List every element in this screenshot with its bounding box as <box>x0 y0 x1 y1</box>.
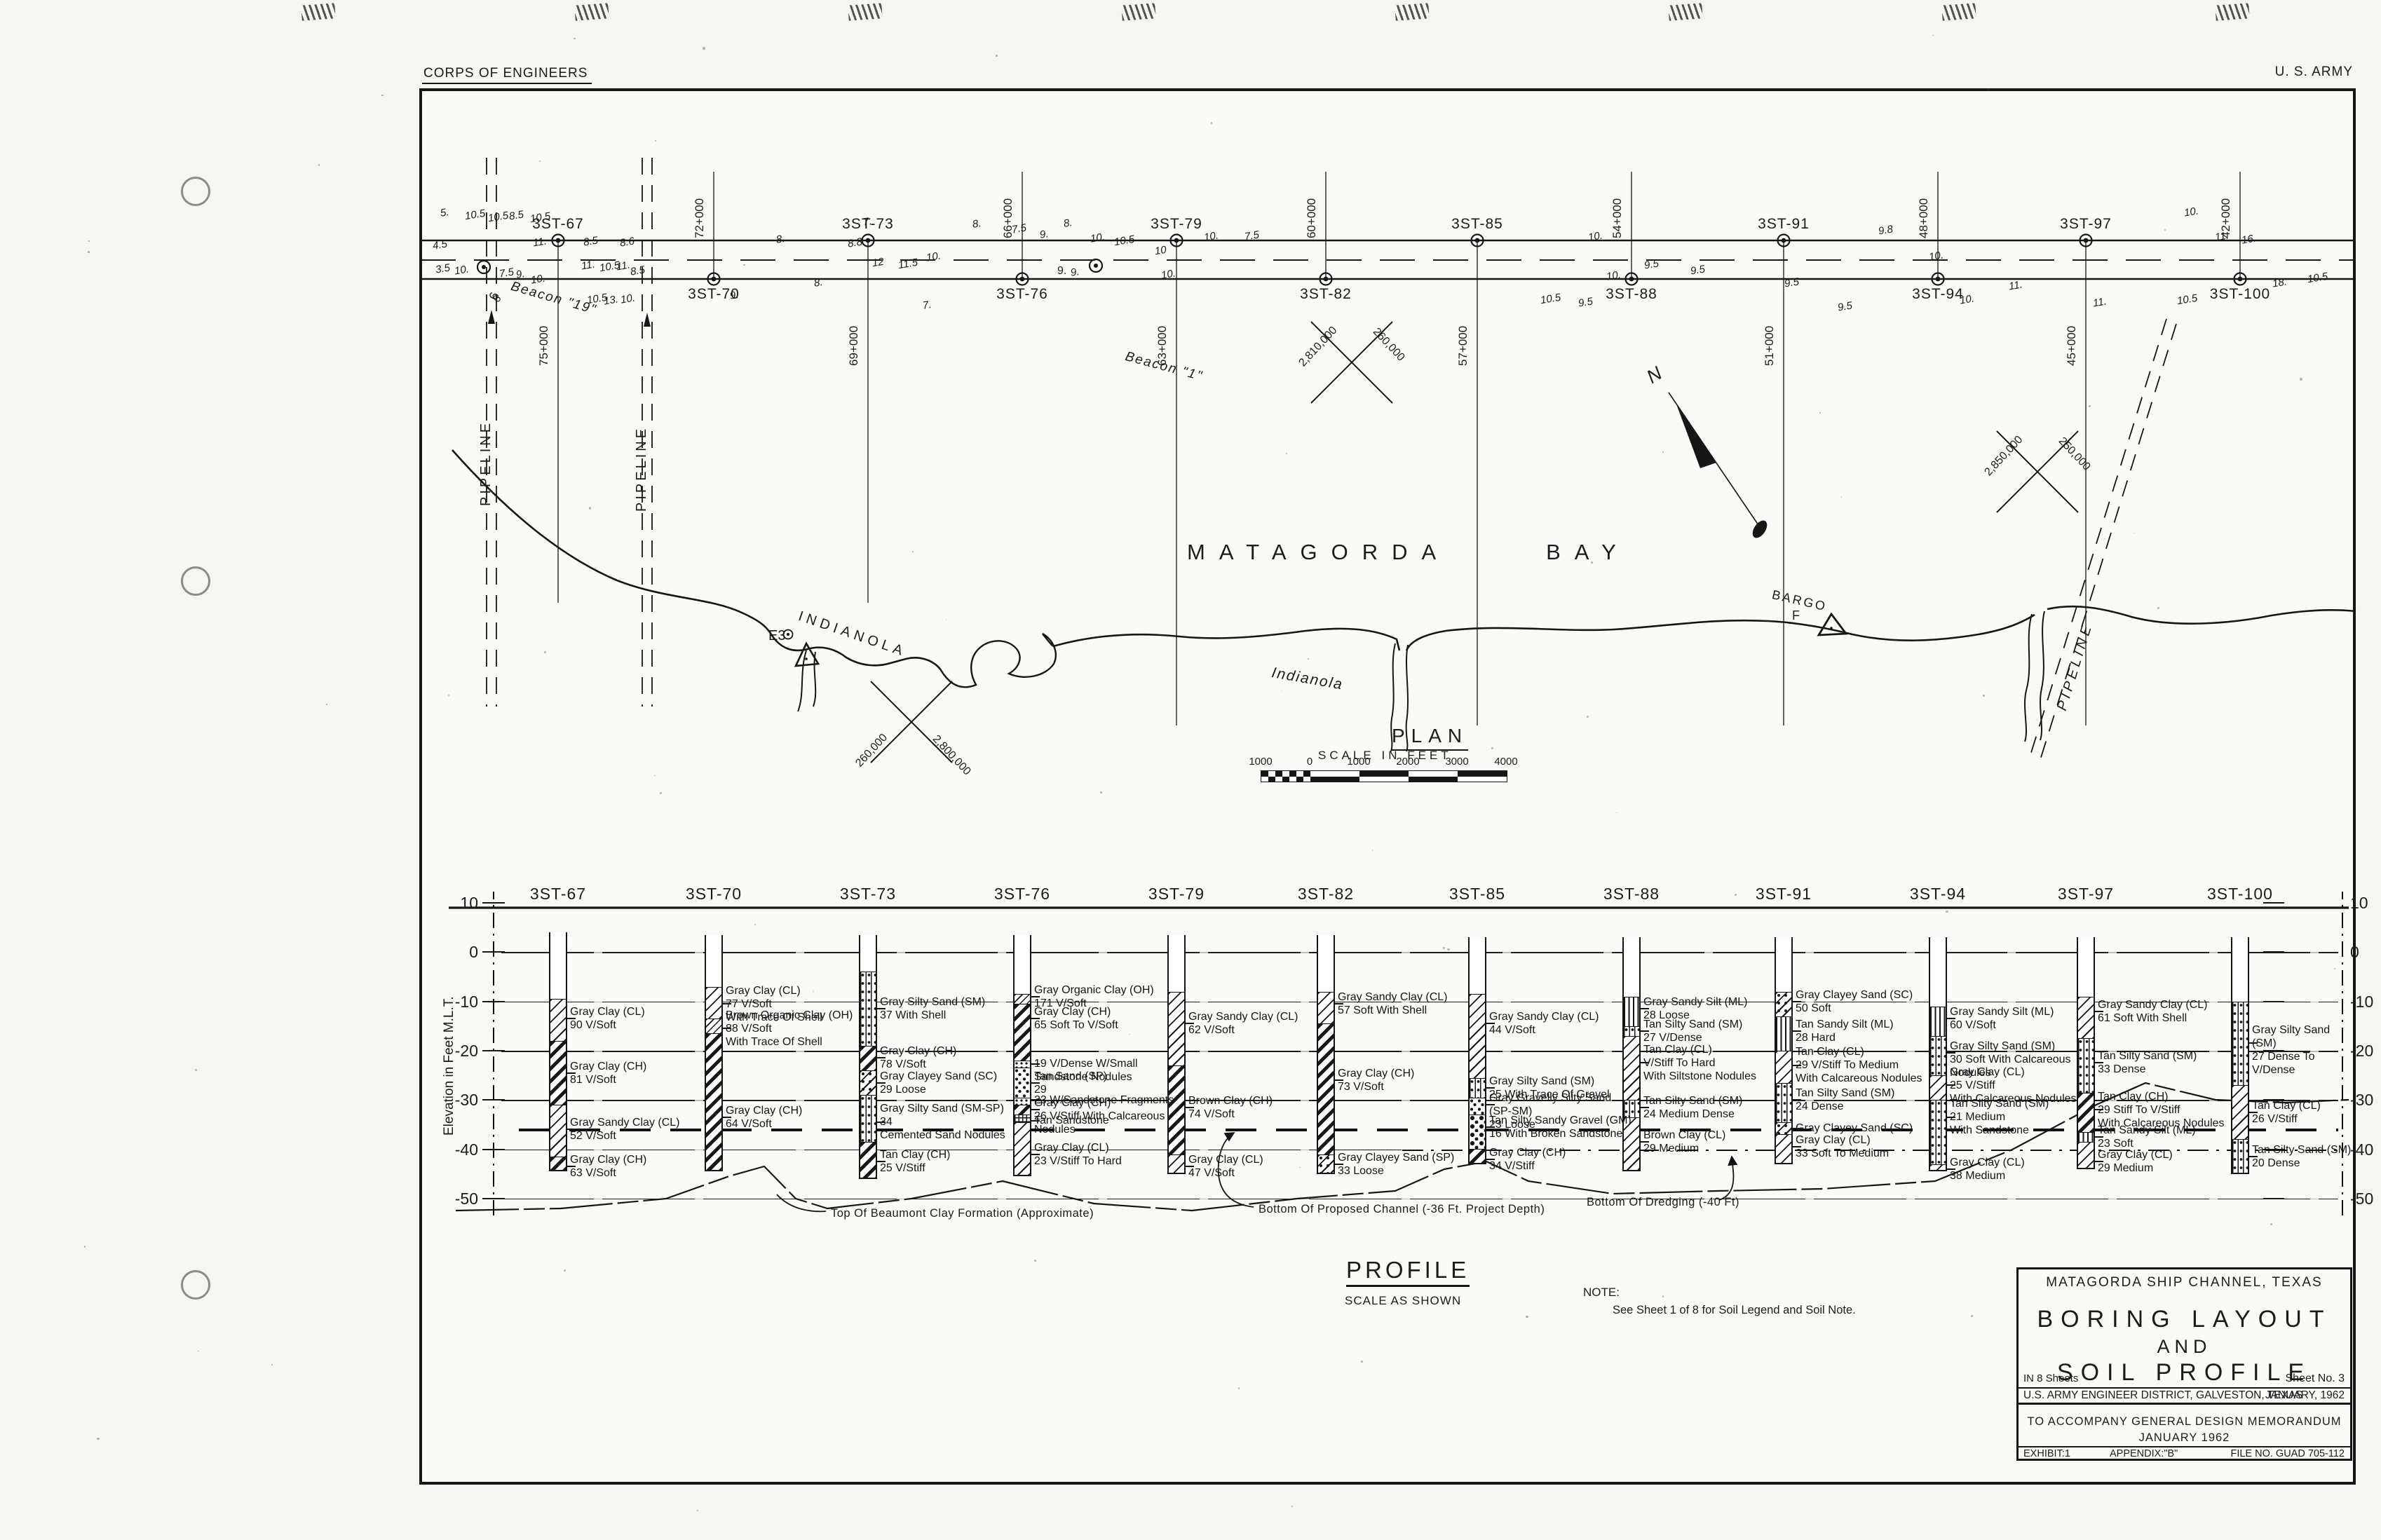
profile-station-label: 3ST-85 <box>1421 885 1533 904</box>
soil-label-leader <box>1946 1084 1955 1086</box>
profile-station-label: 3ST-82 <box>1270 885 1382 904</box>
boring-column <box>859 935 877 1179</box>
scalebar-label: 1000 <box>1245 756 1276 768</box>
scalebar-cell <box>1310 777 1359 782</box>
sounding-value: 10. <box>1587 229 1603 243</box>
boring-column <box>549 932 567 1171</box>
sounding-value: 8.6 <box>619 235 635 249</box>
soil-label: Tan Silty Sand (SM)21 MediumWith Sandsto… <box>1950 1097 2094 1137</box>
titleblock-memo1: TO ACCOMPANY GENERAL DESIGN MEMORANDUM <box>2019 1415 2350 1429</box>
soil-label-line: 37 With Shell <box>880 1009 1024 1022</box>
soil-label-line: 90 V/Soft <box>570 1018 714 1032</box>
elevation-label: 0 <box>2350 943 2381 962</box>
sounding-value: 7. <box>862 215 873 229</box>
sounding-value: 10. <box>1606 268 1622 282</box>
plan-chainage-label: 51+000 <box>1763 301 1777 366</box>
soil-label-line: 47 V/Soft <box>1188 1166 1332 1180</box>
soil-label-line: 16 With Broken Sandstone <box>1489 1127 1633 1140</box>
soil-label-line: Gray Clay (CL) <box>1034 1141 1178 1154</box>
soil-label: Gray Clay (CH)63 V/Soft <box>570 1153 714 1180</box>
soil-label-leader <box>1031 1154 1040 1155</box>
soil-label-leader <box>1946 1117 1955 1118</box>
soil-label-line: With Sandstone <box>1950 1124 2094 1137</box>
soil-label: Gray Clayey Sand (SP)33 Loose <box>1338 1151 1481 1178</box>
soil-label: Tan Silty Sand (SM)20 Dense <box>2252 1143 2356 1170</box>
elevation-tick <box>482 951 505 953</box>
plan-chainage-label: 48+000 <box>1917 174 1931 238</box>
north-arrow-tail <box>1750 518 1770 540</box>
plan-station-label: 3ST-97 <box>2037 216 2135 233</box>
profile-station-label: 3ST-73 <box>812 885 924 904</box>
soil-label-line: Gray Clay (CL) <box>726 984 869 997</box>
beaumont-annotation: Top Of Beaumont Clay Formation (Approxim… <box>831 1207 1094 1220</box>
soil-label: Tan Clay (CL)26 V/Stiff <box>2252 1099 2356 1126</box>
soil-segment-blank <box>1470 937 1485 994</box>
sounding-value: 11. <box>2008 279 2023 293</box>
soil-label-line: Gray Clay (CH) <box>570 1060 714 1073</box>
soil-label-line: 73 V/Soft <box>1338 1080 1481 1093</box>
plan-chainage-label: 69+000 <box>847 301 861 366</box>
soil-label-line: 34 <box>880 1115 1024 1129</box>
profile-station-label: 3ST-79 <box>1120 885 1233 904</box>
soil-label-line: 52 V/Soft <box>570 1129 714 1143</box>
soil-label-line: 33 Soft To Medium <box>1796 1147 1939 1160</box>
soil-label-line: With Calcareous Nodules <box>1796 1072 1939 1085</box>
soil-label-line: Gray Silty Sand (SM-SP) <box>880 1102 1024 1115</box>
soil-label-line: Gray Silty Sand (SM) <box>2252 1023 2356 1050</box>
sounding-value: 10. <box>925 250 942 264</box>
elevation-label: -40 <box>433 1140 478 1159</box>
plan-chainage-label: 57+000 <box>1456 301 1470 366</box>
soil-label-line: Gray Sandy Clay (CL) <box>1188 1010 1332 1023</box>
scalebar-label: 0 <box>1294 756 1325 768</box>
soil-label: Tan Clay (CH)25 V/Stiff <box>880 1148 1024 1175</box>
sounding-value: 10. <box>454 263 470 277</box>
scalebar-cell <box>1282 771 1289 777</box>
note-body: See Sheet 1 of 8 for Soil Legend and Soi… <box>1613 1304 1856 1317</box>
elevation-label: -10 <box>433 993 478 1011</box>
soil-label-line: 24 Dense <box>1796 1100 1939 1113</box>
soil-label-line: Gray Clay (CH) <box>1489 1146 1633 1159</box>
scalebar-cell <box>1359 771 1409 777</box>
soil-segment-cl <box>550 999 566 1041</box>
titleblock-date: JANUARY, 1962 <box>2265 1389 2345 1402</box>
soil-segment-ch <box>860 1046 876 1070</box>
soil-segment-blank <box>1015 935 1030 994</box>
boring-location-icon <box>2238 277 2243 282</box>
soil-label-line: Tan Silty Sandy Gravel (GM) <box>1489 1114 1633 1127</box>
scalebar-label: 1000 <box>1343 756 1374 768</box>
soil-segment-blank <box>1624 937 1639 996</box>
soil-label-leader <box>1031 996 1040 997</box>
soil-label-line: Gray Clay (CL) <box>1796 1133 1939 1147</box>
soil-label-line: 81 V/Soft <box>570 1073 714 1086</box>
soil-label-leader <box>1334 1079 1343 1081</box>
soil-label-leader <box>1031 1063 1040 1065</box>
soil-label: Gray Clay (CL)29 Medium <box>2098 1148 2241 1175</box>
pipeline-line <box>2030 319 2166 757</box>
elevation-label: -20 <box>433 1042 478 1061</box>
sounding-value: 11. <box>616 259 631 273</box>
soil-label-leader <box>1486 1104 1495 1105</box>
soil-label: Tan Sandy Silt (ML)28 Hard <box>1796 1018 1939 1044</box>
soil-label-leader <box>1486 1087 1495 1089</box>
profile-station-label: 3ST-70 <box>658 885 770 904</box>
soil-label-line: 50 Soft <box>1796 1002 1939 1015</box>
soil-label: Tan Sand (SP)29 <box>1034 1070 1178 1096</box>
channel-bottom-annotation: Bottom Of Proposed Channel (-36 Ft. Proj… <box>1259 1203 1545 1216</box>
elevation-tick <box>482 1198 505 1199</box>
plan-chainage-label: 72+000 <box>693 174 707 238</box>
soil-label-line: Gray Silty Sand (SM) <box>1489 1075 1633 1088</box>
boring-location-icon <box>1324 277 1329 282</box>
scalebar-cell <box>1268 777 1275 782</box>
profile-station-label: 3ST-88 <box>1575 885 1688 904</box>
soil-label-line: Gray Sandy Silt (ML) <box>1950 1005 2094 1018</box>
soil-label-line: Cemented Sand Nodules <box>880 1129 1024 1142</box>
soil-label-line: Brown Organic Clay (OH) <box>726 1009 869 1022</box>
boring-location-icon <box>1629 277 1634 282</box>
scalebar-cell <box>1289 777 1296 782</box>
titleblock-fileno: FILE NO. GUAD 705-112 <box>2230 1448 2345 1459</box>
sounding-value: 3.5 <box>435 261 451 275</box>
soil-segment-sp <box>1470 1098 1485 1115</box>
soil-label-line: Tan Silty Sand (SM) <box>2252 1143 2356 1157</box>
soil-label-line: Tan Clay (CL) <box>1643 1043 1787 1056</box>
soil-label-leader <box>876 1008 886 1009</box>
soil-label-leader <box>1486 1159 1495 1160</box>
profile-station-label: 3ST-94 <box>1882 885 1994 904</box>
soil-label-line: 21 Medium <box>1950 1110 2094 1124</box>
titleblock-exhibit: EXHIBIT:1 <box>2023 1448 2070 1459</box>
soil-label-line: 29 Medium <box>1643 1142 1787 1155</box>
soil-label-line: Gray Clay (CH) <box>570 1153 714 1166</box>
plan-station-label: 3ST-91 <box>1735 216 1833 233</box>
soil-label-leader <box>2248 1042 2258 1044</box>
sounding-value: 10 <box>1154 244 1167 257</box>
sounding-value: 8. <box>972 217 982 231</box>
soil-label-line: Gray Clay (CH) <box>726 1104 869 1117</box>
soil-segment-sc <box>860 1070 876 1095</box>
scalebar-label: 2000 <box>1392 756 1423 768</box>
soil-label: Gray Sandy Clay (CL)61 Soft With Shell <box>2098 998 2241 1025</box>
soil-label-line: Tan Silty Sand (SM) <box>1643 1094 1787 1108</box>
sounding-value: 9. <box>515 268 526 281</box>
sounding-value: 8. <box>1063 217 1073 230</box>
sounding-value: 11. <box>2214 230 2230 244</box>
soil-label-line: Gray Clay (CL) <box>1188 1153 1332 1166</box>
soil-label: Gray Clay (CH)65 Soft To V/Soft <box>1034 1005 1178 1032</box>
soil-label-leader <box>1031 1082 1040 1084</box>
soil-segment-blank <box>1318 935 1334 992</box>
soil-segment-ch <box>706 1033 721 1171</box>
elevation-tick <box>482 1149 505 1150</box>
scalebar-cell <box>1296 777 1303 782</box>
scalebar-cell <box>1275 771 1282 777</box>
scalebar-cell <box>1409 771 1458 777</box>
pipeline-label-2: PIPELINE <box>634 364 650 512</box>
soil-label-leader <box>1792 1065 1801 1066</box>
soil-label-line: Gray Clay (CH) <box>1338 1067 1481 1080</box>
soil-label-leader <box>2094 1062 2103 1063</box>
soil-label-leader <box>1031 1120 1040 1122</box>
sounding-value: 9.5 <box>1690 263 1706 277</box>
e3-triangle-dot <box>805 657 808 660</box>
scalebar-cell <box>1289 771 1296 777</box>
soil-label-line: With Siltstone Nodules <box>1643 1070 1787 1083</box>
soil-label-line: 25 V/Stiff <box>880 1161 1024 1175</box>
dredging-leader <box>1719 1157 1733 1200</box>
soil-segment-gm <box>1470 1115 1485 1149</box>
e3-beacon-icon <box>787 633 789 636</box>
soil-label: Brown Clay (CL)29 Medium <box>1643 1129 1787 1155</box>
beacon1-number: 9. <box>1057 265 1066 278</box>
sounding-value: 11. <box>532 236 548 250</box>
sounding-value: 8.5 <box>508 208 524 222</box>
soil-segment-blank <box>2078 937 2094 996</box>
soil-label-leader <box>1031 1018 1040 1019</box>
sounding-value: 10. <box>1959 292 1975 306</box>
plan-station-label: 3ST-76 <box>973 286 1071 303</box>
sounding-value: 9. <box>729 289 740 302</box>
soil-label: Gray Silty Sand (SM)37 With Shell <box>880 995 1024 1022</box>
soil-segment-blank <box>860 935 876 972</box>
soil-label-leader <box>2094 1109 2103 1110</box>
soil-label-line: Brown Clay (CH) <box>1188 1094 1332 1108</box>
soil-segment-ch <box>550 1157 566 1171</box>
soil-label-line: 64 V/Soft <box>726 1117 869 1131</box>
titleblock-title2: AND <box>2019 1336 2350 1358</box>
header-left: CORPS OF ENGINEERS <box>422 66 592 84</box>
soil-label-line: Gray Silty Sand (SM) <box>880 995 1024 1009</box>
soil-label-line: 27 Dense To <box>2252 1050 2356 1063</box>
scalebar-cell <box>1458 777 1507 782</box>
soil-label: Gray Sandy Clay (CL)57 Soft With Shell <box>1338 990 1481 1017</box>
titleblock-memo2: JANUARY 1962 <box>2019 1431 2350 1445</box>
soil-label: Tan Silty Sand (SM)33 Dense <box>2098 1049 2241 1076</box>
e3-label: E3 <box>768 628 785 644</box>
header-right: U. S. ARMY <box>2230 64 2353 80</box>
soil-segment-blank <box>706 935 721 987</box>
soil-label: Gray Clay (CH)73 V/Soft <box>1338 1067 1481 1093</box>
plan-chainage-label: 63+000 <box>1155 301 1169 366</box>
sounding-value: 8. <box>813 276 824 289</box>
soil-label-leader <box>1486 1023 1495 1024</box>
soil-label-leader <box>1946 1018 1955 1019</box>
titleblock-district: U.S. ARMY ENGINEER DISTRICT, GALVESTON, … <box>2023 1389 2303 1402</box>
scalebar-cell <box>1275 777 1282 782</box>
soil-label-leader <box>1792 1099 1801 1101</box>
scalebar-cell <box>1261 771 1268 777</box>
scalebar-cell <box>1303 777 1310 782</box>
note-title: NOTE: <box>1583 1286 1620 1300</box>
titleblock-sheets-note: IN 8 Sheets <box>2023 1372 2078 1384</box>
soil-label-line: 65 Soft To V/Soft <box>1034 1018 1178 1032</box>
soil-label-line: Tan Sandy Silt (ML) <box>1796 1018 1939 1031</box>
soil-label-line: Gray Sandy Silt (ML) <box>1643 995 1787 1009</box>
soil-label-leader <box>1792 1030 1801 1032</box>
soil-label-line: 29 V/Stiff To Medium <box>1796 1058 1939 1072</box>
boring-location-icon <box>1936 277 1941 282</box>
soil-label-leader <box>2248 1112 2258 1113</box>
soil-label-line: Gray Clayey Sand (SC) <box>880 1070 1024 1083</box>
soil-label-leader <box>2094 1136 2103 1138</box>
soil-label-line: 29 Medium <box>2098 1161 2241 1175</box>
soil-label-leader <box>1031 1109 1040 1110</box>
soil-label-line: Gray Clay (CL) <box>2098 1148 2241 1161</box>
soil-label: Gray Silty Sand (SM-SP)34Cemented Sand N… <box>880 1102 1024 1142</box>
soil-label: Gray Sandy Clay (CL)52 V/Soft <box>570 1116 714 1143</box>
plan-station-label: 3ST-85 <box>1428 216 1526 233</box>
soil-label-leader <box>1640 1107 1649 1108</box>
titleblock-project: MATAGORDA SHIP CHANNEL, TEXAS <box>2019 1275 2350 1290</box>
soil-label-leader <box>1792 1001 1801 1002</box>
soil-label: Tan Silty Sand (SM)24 Dense <box>1796 1086 1939 1113</box>
soil-label-leader <box>1640 1030 1649 1032</box>
title-block: MATAGORDA SHIP CHANNEL, TEXAS BORING LAY… <box>2016 1267 2352 1461</box>
soil-label-leader <box>2094 1011 2103 1012</box>
stream <box>2025 611 2044 742</box>
pipeline-label-1: PIPELINE <box>478 359 494 506</box>
soil-label: Tan Clay (CL)29 V/Stiff To MediumWith Ca… <box>1796 1045 1939 1085</box>
soil-label-line: V/Dense <box>2252 1063 2356 1077</box>
soil-segment-cl <box>1930 1164 1946 1172</box>
soil-segment-blank <box>2232 937 2248 1001</box>
soil-label-line: Gray Clay (CL) <box>1950 1156 2094 1169</box>
shoreline <box>1053 606 2356 650</box>
soil-label: Gray Clayey Sand (SC)50 Soft <box>1796 988 1939 1015</box>
soil-label: Gray Clay (CL)23 V/Stiff To Hard <box>1034 1141 1178 1168</box>
bargo-triangle-dot <box>1830 627 1833 629</box>
elevation-label: -10 <box>2350 993 2381 1011</box>
soil-segment-ch <box>860 1142 876 1179</box>
soil-label-line: 29 Loose <box>880 1083 1024 1096</box>
soil-label: Tan Silty Sand (SM)27 V/Dense <box>1643 1018 1787 1044</box>
soil-label-leader <box>722 1003 731 1004</box>
elevation-label: -50 <box>2350 1190 2381 1208</box>
profile-station-label: 3ST-76 <box>966 885 1078 904</box>
elevation-label: 10 <box>2350 894 2381 913</box>
soil-segment-blank <box>550 932 566 999</box>
soil-label-leader <box>876 1161 886 1162</box>
north-arrow-blade <box>1676 402 1716 468</box>
scalebar-cell <box>1409 777 1458 782</box>
soil-label-line: Gray Sandy Clay (CL) <box>570 1116 714 1129</box>
sounding-value: 10. <box>1928 249 1944 263</box>
boring-location-icon <box>1020 277 1025 282</box>
soil-label-leader <box>722 1117 731 1118</box>
plan-chainage-label: 42+000 <box>2219 174 2233 238</box>
sounding-value: 13. <box>603 293 619 307</box>
sounding-value: 9. <box>1070 266 1080 279</box>
sounding-value: 10. <box>1160 267 1176 281</box>
pipeline-arrow <box>488 310 495 324</box>
sounding-value: 8.8 <box>847 236 863 250</box>
elevation-label: 10 <box>433 894 478 913</box>
soil-label: Gray Clay (CH)34 V/Stiff <box>1489 1146 1633 1173</box>
sounding-value: 12 <box>871 256 885 269</box>
boring-location-icon <box>1174 238 1179 243</box>
scalebar-cell <box>1310 771 1359 777</box>
soil-label: Brown Clay (CH)74 V/Soft <box>1188 1094 1332 1121</box>
soil-label-line: Tan Clay (CL) <box>1796 1045 1939 1058</box>
sounding-value: 11. <box>2092 296 2108 310</box>
soil-label: Tan Silty Sand (SM)24 Medium Dense <box>1643 1094 1787 1121</box>
scalebar-cell <box>1268 771 1275 777</box>
soil-label: Tan Clay (CL)V/Stiff To HardWith Siltsto… <box>1643 1043 1787 1083</box>
boring-column <box>1317 935 1335 1174</box>
soil-label: Tan Sandy Silt (ML)23 Soft <box>2098 1124 2241 1150</box>
soil-label: Gray Clayey Sand (SC)29 Loose <box>880 1070 1024 1096</box>
soil-label-line: Tan Silty Sand (SM) <box>1796 1086 1939 1100</box>
boring-location-icon <box>1782 238 1786 243</box>
soil-label-line: Gray Organic Clay (OH) <box>1034 983 1178 997</box>
soil-label-line: 74 V/Soft <box>1188 1108 1332 1121</box>
beaumont-leader <box>777 1194 826 1211</box>
soil-label-line: 25 V/Stiff <box>1950 1079 2094 1092</box>
soil-label-leader <box>567 1166 576 1167</box>
scalebar-cell <box>1303 771 1310 777</box>
plan-title: PLAN <box>1392 725 1468 751</box>
soil-label-line: Tan Clay (CL) <box>2252 1099 2356 1112</box>
soil-label-line: 63 V/Soft <box>570 1166 714 1180</box>
beacon-icon <box>1094 264 1098 268</box>
sounding-value: 9.5 <box>1578 295 1594 309</box>
soil-label-line: 23 V/Stiff To Hard <box>1034 1154 1178 1168</box>
soil-label-leader <box>1185 1023 1194 1024</box>
soil-label-leader <box>2248 1156 2258 1157</box>
sounding-value: 7.5 <box>498 266 515 280</box>
plan-chainage-label: 60+000 <box>1305 174 1319 238</box>
boring-column <box>1468 937 1486 1164</box>
sounding-value: 10. <box>530 272 546 286</box>
soil-label-line: Gray Clay (CH) <box>1034 1096 1178 1110</box>
soil-label-line: Tan Silty Sand (SM) <box>2098 1049 2241 1063</box>
soil-label-line: 88 V/Soft <box>726 1022 869 1035</box>
drawing-sheet: CORPS OF ENGINEERS U. S. ARMY MATAGORDA … <box>0 0 2381 1540</box>
soil-label: Gray Sandy Silt (ML)60 V/Soft <box>1950 1005 2094 1032</box>
soil-label-leader <box>876 1082 886 1084</box>
plan-station-label: 3ST-82 <box>1277 286 1375 303</box>
soil-label: Gray Sandy Clay (CL)44 V/Soft <box>1489 1010 1633 1037</box>
titleblock-sheet-no: Sheet No. 3 <box>2286 1372 2345 1385</box>
sounding-value: 8.5 <box>583 234 599 248</box>
elevation-tick <box>2263 951 2284 953</box>
soil-label-line: Tan Clay (CH) <box>2098 1090 2241 1103</box>
soil-label-line: 26 V/Stiff <box>2252 1112 2356 1126</box>
sounding-value: 10. <box>620 292 636 306</box>
soil-label: Gray Silty Sand (SM)27 Dense ToV/Dense <box>2252 1023 2356 1077</box>
soil-label: Gray Clay (CL)33 Soft To Medium <box>1796 1133 1939 1160</box>
soil-label-line: Gray Clay (CH) <box>1034 1005 1178 1018</box>
profile-station-label: 3ST-67 <box>502 885 614 904</box>
soil-label-line: Gray Sandy Clay (CL) <box>2098 998 2241 1011</box>
scalebar-cell <box>1282 777 1289 782</box>
soil-label-leader <box>1946 1168 1955 1170</box>
soil-label-leader <box>1185 1166 1194 1167</box>
soil-segment-blank <box>1776 937 1791 991</box>
titleblock-title1: BORING LAYOUT <box>2019 1306 2350 1333</box>
soil-label-line: Tan Clay (CH) <box>880 1148 1024 1161</box>
soil-label-line: 61 Soft With Shell <box>2098 1011 2241 1025</box>
soil-label: Gray Clay (CH)78 V/Soft <box>880 1044 1024 1071</box>
soil-label-line: 28 Hard <box>1796 1031 1939 1044</box>
sounding-value: 9.8 <box>1878 223 1894 237</box>
soil-label-leader <box>1792 1146 1801 1147</box>
plan-chainage-label: 75+000 <box>537 301 551 366</box>
boring-location-icon <box>1475 238 1480 243</box>
sounding-value: 16. <box>2241 232 2257 246</box>
